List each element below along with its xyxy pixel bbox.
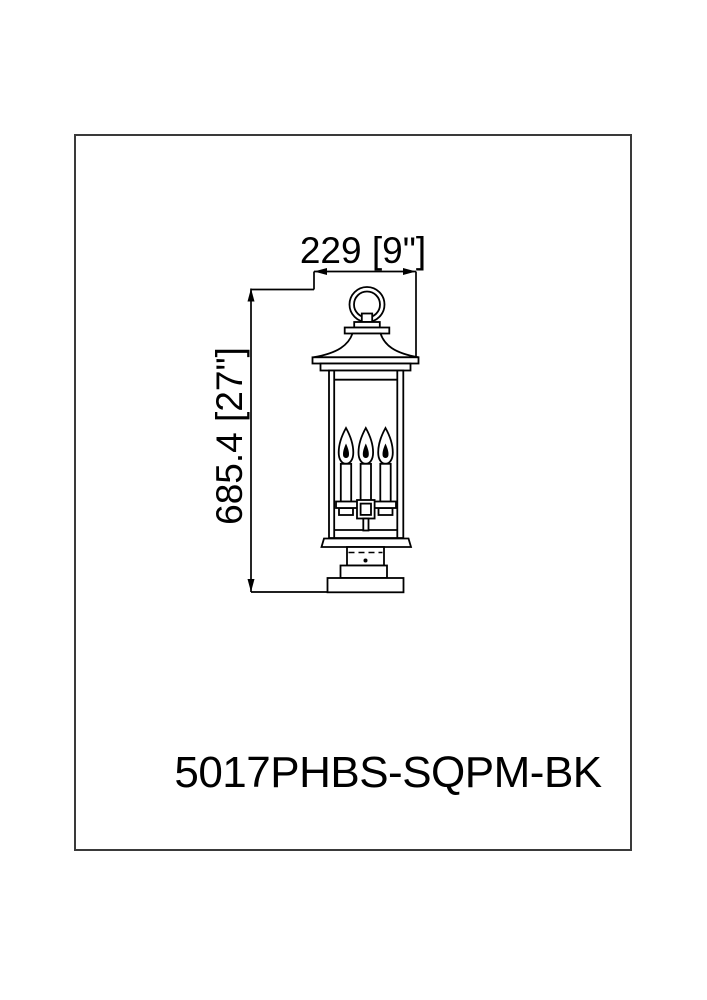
base-neck — [347, 547, 384, 566]
ring-finial — [345, 287, 390, 334]
roof-bell — [314, 334, 419, 358]
height-dimension — [248, 289, 329, 593]
lantern-technical-drawing — [0, 0, 707, 1000]
base-block — [328, 578, 404, 592]
candle-body — [361, 464, 371, 501]
model-number: 5017PHBS-SQPM-BK — [138, 751, 638, 795]
height-dimension-label: 685.4 [27"] — [211, 347, 248, 525]
candle-center — [359, 428, 374, 501]
candle-cup — [339, 508, 353, 515]
ring-stem — [362, 314, 372, 323]
center-stem — [363, 519, 368, 531]
arrow-up-icon — [248, 289, 255, 302]
candle-body — [341, 464, 351, 502]
roof-rim-upper — [313, 357, 419, 363]
base-step — [341, 566, 388, 579]
arrow-down-icon — [248, 579, 255, 592]
junction-box-inner — [361, 504, 371, 515]
base-plate — [322, 539, 412, 548]
candle-body — [380, 464, 390, 502]
candle-cup — [379, 508, 393, 515]
post-lantern-figure — [313, 287, 419, 592]
candle-cluster — [336, 428, 396, 531]
pier-mount-base — [322, 539, 412, 593]
roof-rim-lower — [321, 364, 411, 371]
width-dimension-label: 229 [9"] — [296, 232, 430, 269]
spec-sheet: 229 [9"] 685.4 [27"] 5017PHBS-SQPM-BK — [0, 0, 707, 1000]
setscrew-dot — [364, 559, 368, 563]
